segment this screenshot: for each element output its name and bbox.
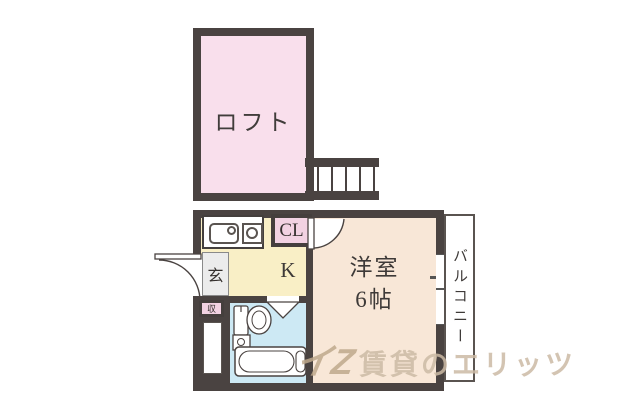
room-door-icon xyxy=(305,214,351,254)
loft-ladder xyxy=(305,158,379,200)
ladder-rung xyxy=(373,167,375,191)
western-room-label: 洋室 6帖 xyxy=(313,252,436,316)
sink-icon xyxy=(209,223,239,244)
burner-icon xyxy=(246,227,258,239)
bathtub-icon xyxy=(234,346,308,378)
room-name: 洋室 xyxy=(313,252,436,284)
ladder-rung xyxy=(345,167,347,191)
ladder-rung xyxy=(331,167,333,191)
kitchen-counter xyxy=(202,215,264,249)
balcony-window-divider xyxy=(436,288,444,290)
loft-label: ロフト xyxy=(201,103,306,137)
ladder-rung xyxy=(359,167,361,191)
room-size: 6帖 xyxy=(313,284,436,316)
faucet-icon xyxy=(227,226,236,235)
ladder-rung xyxy=(317,167,319,191)
closet-label: CL xyxy=(279,220,303,242)
storage-void xyxy=(203,322,222,374)
entrance-door-icon xyxy=(145,248,207,306)
kitchen-label: K xyxy=(270,258,306,283)
entrance-label: 玄 xyxy=(207,262,223,286)
stove-icon xyxy=(242,223,263,244)
balcony: バルコニー xyxy=(444,214,475,382)
balcony-label: バルコニー xyxy=(449,248,470,348)
storage-label: 収 xyxy=(207,302,216,315)
